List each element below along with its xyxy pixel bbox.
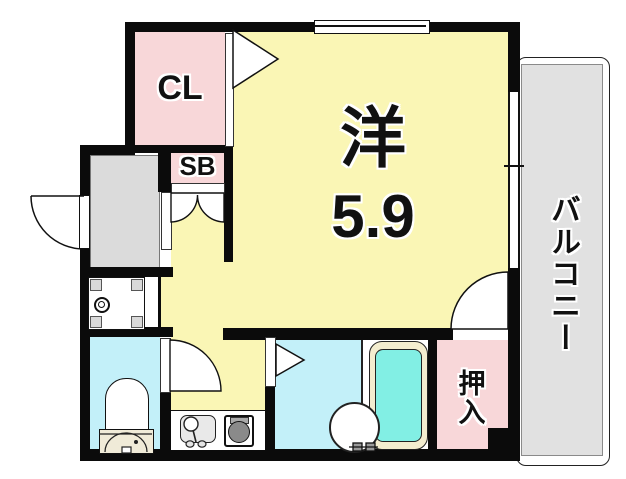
window-top bbox=[314, 20, 430, 34]
pan-corner bbox=[131, 316, 143, 328]
wall-partition-thin bbox=[158, 277, 161, 327]
oshiire-doorway bbox=[453, 328, 508, 340]
wall-hall-left bbox=[158, 153, 171, 192]
kitchen-sink-icon bbox=[180, 415, 216, 443]
shoebox-label: SB bbox=[171, 150, 224, 183]
bathtub-water bbox=[375, 349, 422, 442]
toilet-tank bbox=[99, 429, 154, 454]
wall-oshiire-left bbox=[428, 337, 437, 449]
closet-label: CL bbox=[135, 32, 225, 145]
pan-drain-icon bbox=[94, 297, 110, 313]
closet-door-panel bbox=[225, 33, 234, 147]
western-room-label: 洋 bbox=[253, 88, 493, 178]
genkan-floor bbox=[90, 155, 160, 269]
oshiire-label: 押入 bbox=[440, 355, 500, 440]
shoebox-door-band bbox=[171, 183, 225, 194]
stove-burner-icon bbox=[228, 421, 250, 443]
toilet-door-panel bbox=[160, 338, 171, 393]
wall-closet-left bbox=[125, 22, 135, 155]
wall-left-upper bbox=[80, 145, 90, 195]
washbasin-icon bbox=[329, 402, 380, 453]
pan-corner bbox=[90, 316, 102, 328]
pan-corner bbox=[90, 279, 102, 291]
wall-kitchen-bath bbox=[265, 385, 275, 449]
bathroom-door-panel bbox=[265, 337, 276, 387]
wall-genkan-bottom bbox=[80, 267, 173, 277]
window-balcony-door bbox=[508, 92, 520, 268]
wall-room-left bbox=[224, 145, 233, 262]
western-room-size: 5.9 bbox=[253, 180, 493, 252]
genkan-step bbox=[161, 192, 172, 250]
toilet-bowl bbox=[105, 378, 149, 434]
window-balcony-door-tick bbox=[504, 165, 524, 167]
balcony-floor: バルコニー bbox=[521, 64, 603, 456]
washing-machine-pan-icon bbox=[88, 277, 145, 330]
entrance-door-swing bbox=[31, 196, 84, 249]
bath-partition-line bbox=[361, 340, 363, 404]
balcony-label: バルコニー bbox=[540, 194, 584, 354]
wall-toilet-right bbox=[160, 392, 171, 449]
hall-strip-floor bbox=[161, 277, 171, 327]
window-top-mullion bbox=[315, 25, 426, 27]
pan-corner bbox=[131, 279, 143, 291]
wall-bathroom-top bbox=[223, 328, 453, 340]
entrance-door-panel bbox=[79, 195, 90, 249]
stove-icon bbox=[224, 415, 254, 447]
toilet-icon bbox=[96, 376, 156, 454]
wall-right-top bbox=[508, 22, 520, 92]
pan-drain-inner bbox=[98, 301, 105, 308]
floorplan-canvas: バルコニー bbox=[0, 0, 626, 479]
